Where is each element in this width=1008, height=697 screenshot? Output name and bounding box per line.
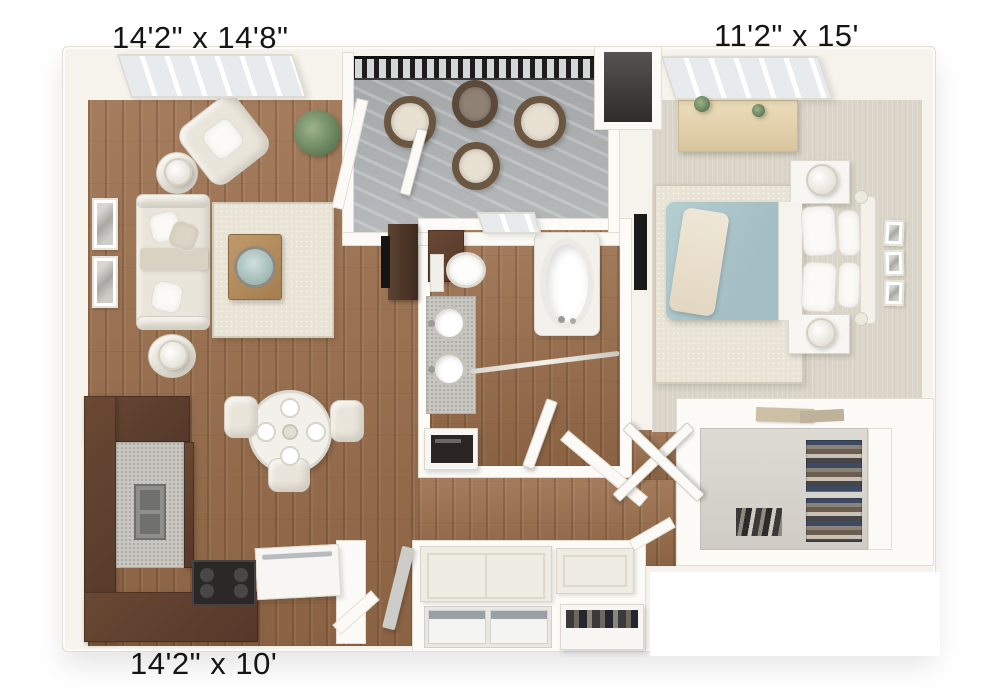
table-lamp-bottom — [158, 340, 188, 370]
kitchen-dimensions-label: 14'2" x 10' — [130, 646, 277, 682]
dresser-plant-1 — [694, 96, 710, 112]
tub-faucet — [558, 316, 565, 323]
bedroom-window — [661, 56, 833, 100]
bathroom-window — [476, 212, 541, 234]
dishwasher — [255, 544, 342, 600]
stove — [192, 560, 256, 606]
kitchen-cabinet-face — [184, 442, 194, 568]
bedpost-bottom — [854, 312, 868, 326]
dresser-plant-2 — [752, 104, 765, 117]
vanity-sink-bottom — [432, 352, 466, 386]
bed-pillow-3 — [837, 210, 861, 257]
footprint-notch — [650, 572, 940, 656]
dining-chair-right — [330, 400, 364, 442]
sofa-armrest-bottom — [136, 316, 210, 330]
wall-art-top — [92, 198, 118, 250]
place-setting-west — [256, 422, 276, 442]
balcony-railing — [350, 56, 610, 80]
closet-divider — [868, 428, 892, 550]
laundry-door-panel-right — [556, 548, 634, 594]
wall-art-bottom — [92, 256, 118, 308]
table-lamp-top — [164, 158, 192, 186]
living-room-window — [117, 54, 307, 98]
toilet-tank — [430, 254, 444, 292]
laundry-door-panel-left — [420, 546, 552, 602]
folded-clothes-stack-1 — [806, 440, 862, 492]
shoes-closet — [736, 508, 782, 536]
vanity-sink-top — [432, 306, 466, 340]
bed-pillow-1 — [800, 205, 837, 257]
utility-niche — [604, 52, 652, 122]
faucet-bottom — [428, 366, 435, 373]
kitchen-sink — [134, 484, 166, 540]
desk-papers-2 — [800, 409, 845, 423]
living-room-dimensions-label: 14'2" x 14'8" — [112, 20, 289, 56]
bathtub — [540, 238, 594, 328]
floor-plan: 14'2" x 14'8" 11'2" x 15' 14'2" x 10' — [0, 0, 1008, 697]
bedpost-top — [854, 190, 868, 204]
patio-chair-left — [384, 96, 436, 148]
nightstand-lamp-top — [806, 164, 838, 196]
sofa-throw-blanket — [140, 248, 208, 270]
bedroom-wall-art-1 — [883, 219, 904, 246]
bedroom-dimensions-label: 11'2" x 15' — [714, 18, 859, 54]
headboard — [860, 196, 876, 324]
sofa-armrest-top — [136, 194, 210, 208]
dryer — [490, 610, 548, 644]
toilet — [446, 252, 486, 288]
tub-handle — [570, 318, 576, 324]
bed-sheet-fold — [778, 202, 802, 320]
microwave-nook — [424, 428, 478, 470]
tv-console — [388, 224, 418, 300]
place-setting-south — [280, 446, 300, 466]
folded-clothes-stack-2 — [806, 498, 862, 542]
potted-plant — [294, 110, 340, 156]
coffee-table-glass — [234, 246, 276, 288]
place-setting-north — [280, 398, 300, 418]
shoe-cubby — [560, 604, 644, 650]
tv-bedroom — [634, 214, 647, 290]
nightstand-lamp-bottom — [806, 318, 836, 348]
faucet-top — [428, 320, 435, 327]
bedroom-wall-art-3 — [884, 280, 905, 307]
patio-chair-right — [514, 96, 566, 148]
washer — [428, 610, 486, 644]
bed-pillow-4 — [837, 262, 861, 309]
table-centerpiece — [282, 424, 298, 440]
dining-chair-left — [224, 396, 258, 438]
tv-living-room — [381, 236, 390, 288]
bed-pillow-2 — [801, 261, 838, 313]
bedroom-wall-art-2 — [884, 250, 905, 277]
place-setting-east — [306, 422, 326, 442]
patio-chair-bottom — [452, 142, 500, 190]
patio-table — [452, 80, 498, 128]
